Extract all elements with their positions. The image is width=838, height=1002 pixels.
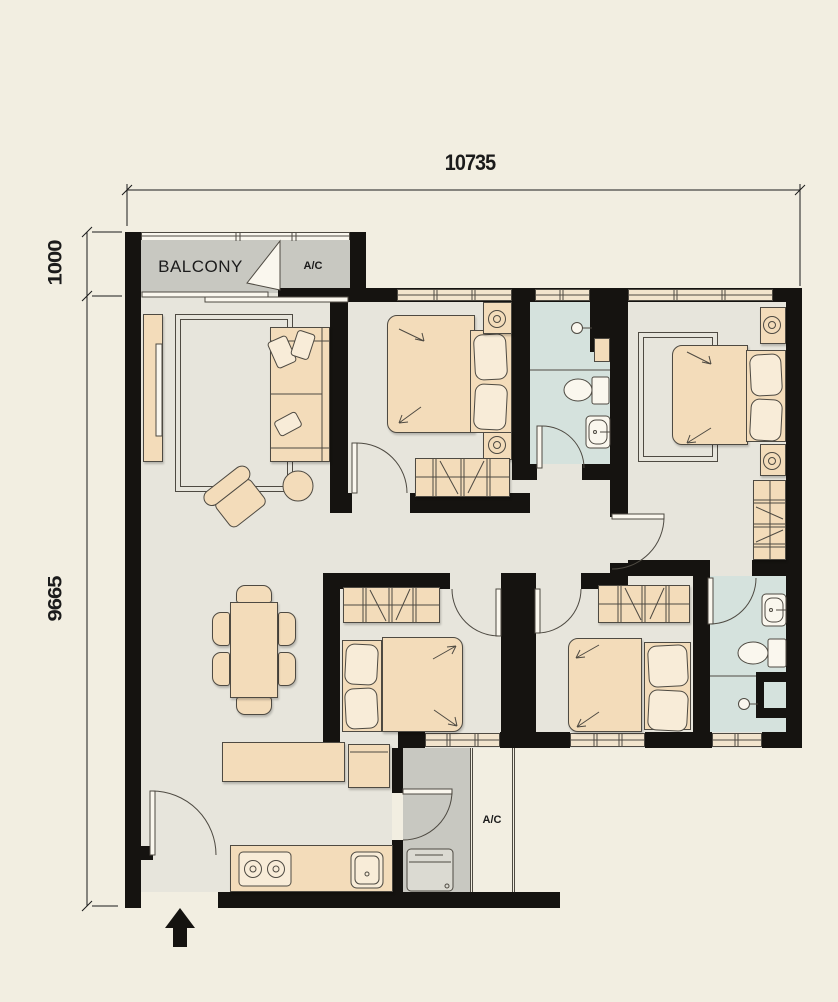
- table-lamp-icon: [489, 311, 781, 470]
- blanket-fold-arrows: [399, 329, 711, 727]
- sofa-detail: [267, 328, 330, 461]
- door-yard: [403, 789, 452, 840]
- side-table: [283, 471, 313, 501]
- wardrobe-pattern: [344, 459, 785, 622]
- dimension-label-width: 10735: [403, 150, 538, 176]
- door-bathroom-1: [537, 426, 584, 468]
- shower-divider: [530, 370, 756, 676]
- service-ac-label: A/C: [478, 814, 506, 826]
- dimension-label-balcony-depth: 1000: [43, 233, 66, 293]
- armchair: [201, 463, 272, 532]
- door-master-bedroom: [612, 514, 664, 569]
- door-bedroom-2: [535, 589, 581, 633]
- tv: [156, 344, 162, 436]
- balcony-railing-ticks: [142, 232, 349, 241]
- washing-machine: [407, 849, 453, 891]
- sliding-door: [142, 292, 348, 302]
- stove: [239, 852, 291, 886]
- door-bathroom-2: [708, 578, 756, 624]
- balcony-label: BALCONY: [148, 257, 253, 277]
- door-entrance: [150, 791, 216, 855]
- door-bedroom-1: [352, 443, 407, 493]
- floor-plan-canvas: 10735 1000 9665 BALCONY A/C A/C: [0, 0, 838, 1002]
- dimension-line-left: [82, 227, 122, 911]
- balcony-ac-label: A/C: [296, 260, 330, 272]
- window-mullions: [398, 290, 772, 746]
- dimension-label-height: 9665: [43, 569, 66, 629]
- door-bedroom-3: [452, 589, 501, 636]
- basin: [586, 416, 786, 626]
- kitchen-sink: [351, 852, 383, 888]
- entrance-arrow-icon: [165, 908, 195, 947]
